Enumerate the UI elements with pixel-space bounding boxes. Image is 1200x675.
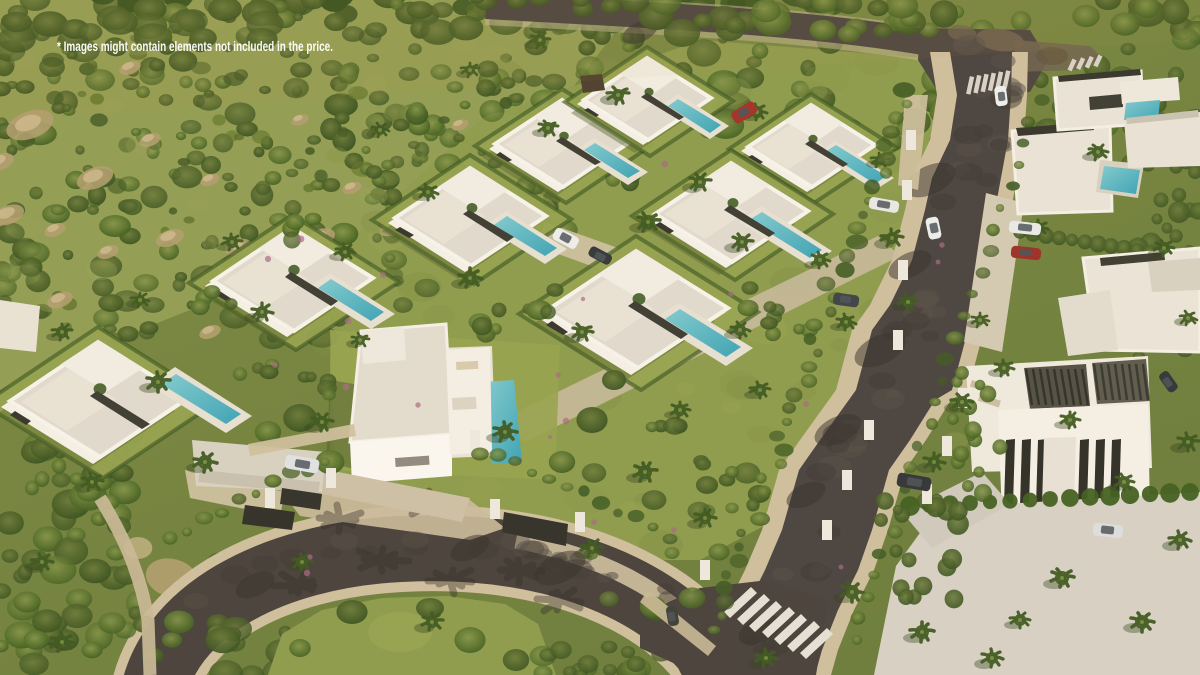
svg-text:* Images might contain element: * Images might contain elements not incl…: [57, 39, 333, 54]
